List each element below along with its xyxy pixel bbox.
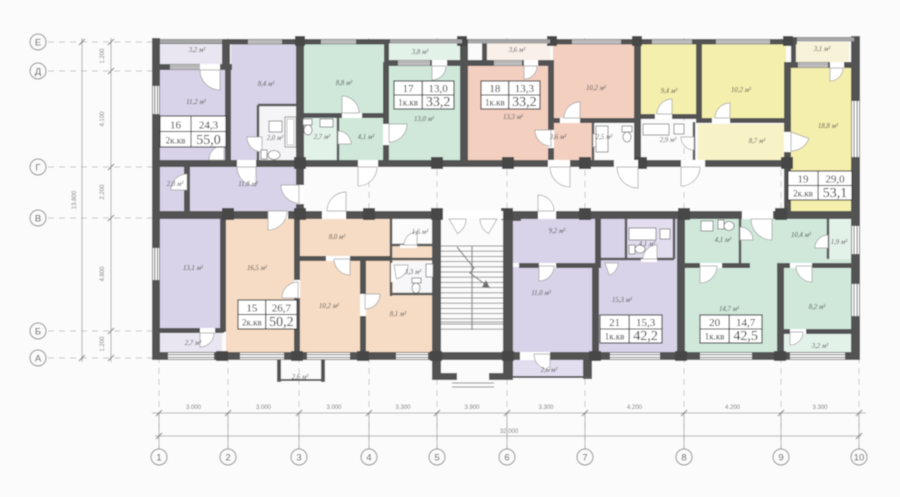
svg-text:3.000: 3.000 <box>186 405 202 411</box>
svg-text:4,1 м²: 4,1 м² <box>715 237 733 244</box>
svg-text:13,1 м²: 13,1 м² <box>183 265 204 272</box>
svg-text:33,2: 33,2 <box>426 95 451 110</box>
svg-text:10,2 м²: 10,2 м² <box>586 85 607 92</box>
svg-text:42,5: 42,5 <box>733 329 758 344</box>
svg-text:2.200: 2.200 <box>100 184 106 200</box>
svg-text:14,7 м²: 14,7 м² <box>719 306 740 313</box>
svg-text:2,7 м²: 2,7 м² <box>185 340 203 347</box>
svg-text:2,0 м²: 2,0 м² <box>267 135 285 142</box>
svg-text:4.200: 4.200 <box>627 405 643 411</box>
svg-text:3,2 м²: 3,2 м² <box>811 343 830 350</box>
svg-text:2к.кв: 2к.кв <box>793 188 813 198</box>
svg-text:11,2 м²: 11,2 м² <box>186 99 206 106</box>
svg-text:2,6 м²: 2,6 м² <box>541 367 559 374</box>
svg-text:16: 16 <box>170 119 182 131</box>
svg-text:19: 19 <box>798 173 810 185</box>
svg-text:10,4 м²: 10,4 м² <box>791 232 812 239</box>
svg-text:17: 17 <box>403 83 415 95</box>
svg-text:3,8 м²: 3,8 м² <box>411 49 430 56</box>
svg-text:3.000: 3.000 <box>256 405 272 411</box>
svg-text:11,0 м²: 11,0 м² <box>531 290 551 297</box>
svg-text:1,6 м²: 1,6 м² <box>412 229 430 236</box>
svg-text:1к.кв: 1к.кв <box>605 331 625 341</box>
svg-text:4.200: 4.200 <box>725 405 741 411</box>
svg-text:14,7: 14,7 <box>736 317 756 329</box>
svg-text:1к.кв: 1к.кв <box>398 97 418 107</box>
svg-text:8,8 м²: 8,8 м² <box>336 80 354 87</box>
svg-text:13,0 м²: 13,0 м² <box>414 116 435 123</box>
svg-text:В: В <box>35 213 41 224</box>
svg-text:3,6 м²: 3,6 м² <box>508 47 527 54</box>
svg-text:15,3: 15,3 <box>636 317 656 329</box>
svg-text:4.800: 4.800 <box>100 266 106 282</box>
svg-text:10,2 м²: 10,2 м² <box>731 87 752 94</box>
svg-text:42,2: 42,2 <box>633 329 658 344</box>
svg-text:15: 15 <box>246 302 258 314</box>
svg-text:32.000: 32.000 <box>500 429 519 435</box>
svg-text:2: 2 <box>225 452 230 463</box>
svg-text:3.300: 3.300 <box>812 405 828 411</box>
svg-text:4,1 м²: 4,1 м² <box>639 241 657 248</box>
svg-text:26,7: 26,7 <box>272 302 292 314</box>
svg-text:Г: Г <box>35 162 40 173</box>
svg-text:10,2 м²: 10,2 м² <box>319 303 340 310</box>
svg-text:50,2: 50,2 <box>269 315 294 330</box>
svg-text:2,6 м²: 2,6 м² <box>292 374 310 381</box>
svg-text:8,1 м²: 8,1 м² <box>390 311 408 318</box>
svg-text:3,3 м²: 3,3 м² <box>404 269 423 276</box>
svg-text:13,3: 13,3 <box>515 83 535 95</box>
svg-text:1.200: 1.200 <box>100 336 106 352</box>
svg-text:53,1: 53,1 <box>823 186 848 201</box>
svg-text:29,0: 29,0 <box>825 173 845 185</box>
svg-text:Д: Д <box>35 66 42 77</box>
svg-text:2к.кв: 2к.кв <box>242 317 262 327</box>
svg-text:А: А <box>35 353 42 364</box>
svg-text:18,8 м²: 18,8 м² <box>818 123 839 130</box>
svg-text:4,1 м²: 4,1 м² <box>358 134 376 141</box>
svg-text:18: 18 <box>489 83 501 95</box>
svg-text:24,3: 24,3 <box>199 119 219 131</box>
svg-text:21: 21 <box>609 317 620 329</box>
svg-text:3,6 м²: 3,6 м² <box>549 134 568 141</box>
svg-text:6: 6 <box>504 452 509 463</box>
svg-text:8,0 м²: 8,0 м² <box>329 234 347 241</box>
svg-text:16,5 м²: 16,5 м² <box>247 265 268 272</box>
svg-text:20: 20 <box>709 317 721 329</box>
svg-text:1.200: 1.200 <box>100 48 106 64</box>
svg-text:33,2: 33,2 <box>512 95 537 110</box>
svg-text:13,0: 13,0 <box>428 83 448 95</box>
svg-text:3: 3 <box>296 452 301 463</box>
svg-text:1: 1 <box>156 452 161 463</box>
svg-text:1к.кв: 1к.кв <box>705 331 725 341</box>
svg-text:15,3 м²: 15,3 м² <box>612 297 633 304</box>
svg-text:1,9 м²: 1,9 м² <box>831 239 849 246</box>
svg-text:10: 10 <box>854 452 865 463</box>
svg-text:Е: Е <box>35 37 41 48</box>
svg-text:3.000: 3.000 <box>326 405 342 411</box>
svg-text:8: 8 <box>681 452 686 463</box>
svg-text:55,0: 55,0 <box>196 133 221 148</box>
svg-text:1к.кв: 1к.кв <box>485 97 505 107</box>
svg-text:3,1 м²: 3,1 м² <box>813 46 832 53</box>
svg-text:13.800: 13.800 <box>72 190 78 209</box>
svg-text:2к.кв: 2к.кв <box>166 135 186 145</box>
svg-text:7: 7 <box>582 452 587 463</box>
svg-text:13,3 м²: 13,3 м² <box>503 114 524 121</box>
svg-text:11,8 м²: 11,8 м² <box>238 181 258 188</box>
svg-text:8,4 м²: 8,4 м² <box>258 81 276 88</box>
svg-text:3.300: 3.300 <box>395 405 411 411</box>
svg-text:2,5 м²: 2,5 м² <box>596 134 614 141</box>
svg-text:8,2 м²: 8,2 м² <box>809 304 827 311</box>
svg-text:3.300: 3.300 <box>538 405 554 411</box>
svg-text:9,2 м²: 9,2 м² <box>549 228 567 235</box>
svg-text:9: 9 <box>778 452 783 463</box>
svg-text:5: 5 <box>434 452 439 463</box>
svg-text:2,7 м²: 2,7 м² <box>314 134 332 141</box>
svg-text:8,7 м²: 8,7 м² <box>749 138 767 145</box>
svg-text:4.100: 4.100 <box>100 111 106 127</box>
svg-text:2,8 м²: 2,8 м² <box>167 181 185 188</box>
svg-text:3.900: 3.900 <box>464 405 480 411</box>
svg-text:9,4 м²: 9,4 м² <box>661 88 679 95</box>
svg-text:2,9 м²: 2,9 м² <box>660 137 678 144</box>
svg-text:Б: Б <box>35 326 41 337</box>
svg-text:4: 4 <box>366 452 371 463</box>
svg-text:3,2 м²: 3,2 м² <box>188 47 207 54</box>
